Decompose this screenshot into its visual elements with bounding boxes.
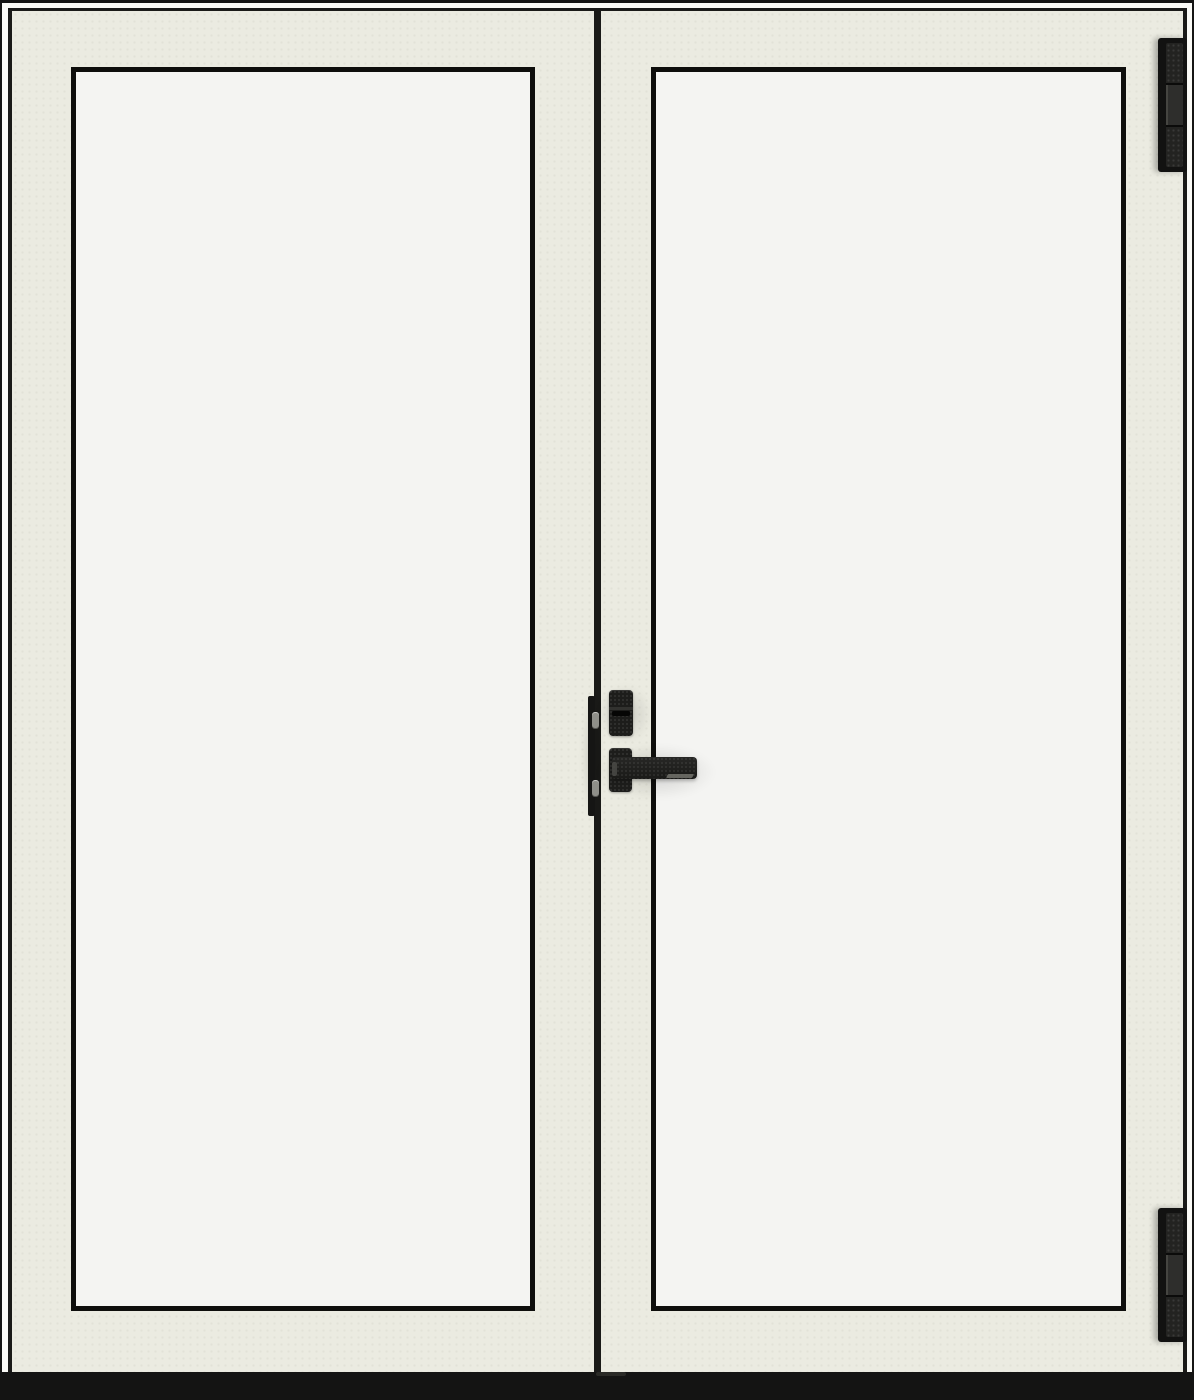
handle-pivot-highlight — [612, 762, 617, 776]
top-hinge-leaf — [1166, 43, 1183, 167]
lever-tip-highlight — [666, 774, 694, 778]
left-door-panel — [12, 11, 594, 1372]
left-glass-pane — [71, 67, 535, 1311]
lock-groove — [609, 707, 633, 710]
bottom-hinge-leaf — [1166, 1213, 1183, 1337]
strike-screw-top — [592, 712, 599, 729]
threshold-sill — [0, 1372, 1194, 1400]
bottom-hinge-knuckle-upper — [1166, 1213, 1183, 1253]
thumbturn-lock-body — [609, 690, 633, 736]
top-hinge — [1158, 38, 1187, 172]
top-hinge-knuckle-upper — [1166, 43, 1183, 83]
thumbturn-slot — [612, 711, 630, 716]
strike-screw-bottom — [592, 780, 599, 797]
top-hinge-barrel — [1166, 83, 1183, 127]
bottom-hinge — [1158, 1208, 1187, 1342]
door-product-image — [0, 0, 1194, 1400]
bottom-hinge-barrel — [1166, 1253, 1183, 1297]
right-glass-pane — [651, 67, 1126, 1311]
bottom-hinge-knuckle-lower — [1166, 1297, 1183, 1337]
flush-bolt-detail — [596, 1372, 626, 1376]
top-hinge-knuckle-lower — [1166, 127, 1183, 167]
right-door-panel — [601, 11, 1183, 1372]
lever-door-handle — [612, 757, 697, 779]
